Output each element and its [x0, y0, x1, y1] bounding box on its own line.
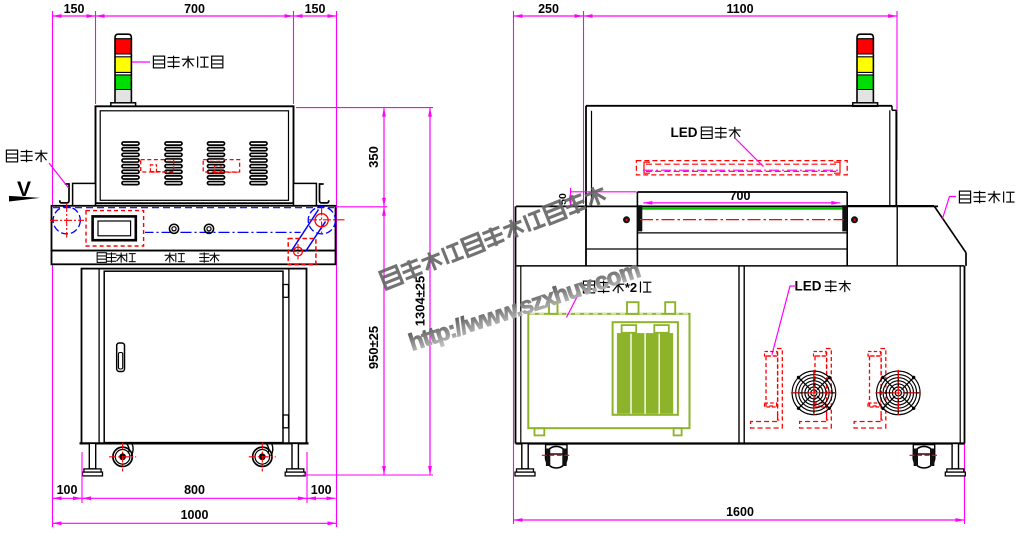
svg-text:250: 250	[538, 2, 559, 16]
svg-text:100: 100	[311, 483, 332, 497]
svg-text:1000: 1000	[181, 508, 209, 522]
svg-text:1100: 1100	[726, 2, 753, 16]
svg-text:LED: LED	[795, 279, 822, 294]
svg-text:350: 350	[366, 146, 381, 168]
svg-text:800: 800	[184, 483, 205, 497]
svg-text:1304±25: 1304±25	[413, 276, 428, 327]
svg-text:700: 700	[184, 2, 205, 16]
svg-text:LED: LED	[671, 125, 698, 140]
svg-text:700: 700	[730, 189, 751, 203]
svg-text:950±25: 950±25	[366, 326, 381, 369]
svg-text:1600: 1600	[726, 505, 754, 519]
svg-text:100: 100	[57, 483, 78, 497]
svg-text:150: 150	[305, 2, 326, 16]
svg-text:150: 150	[64, 2, 85, 16]
